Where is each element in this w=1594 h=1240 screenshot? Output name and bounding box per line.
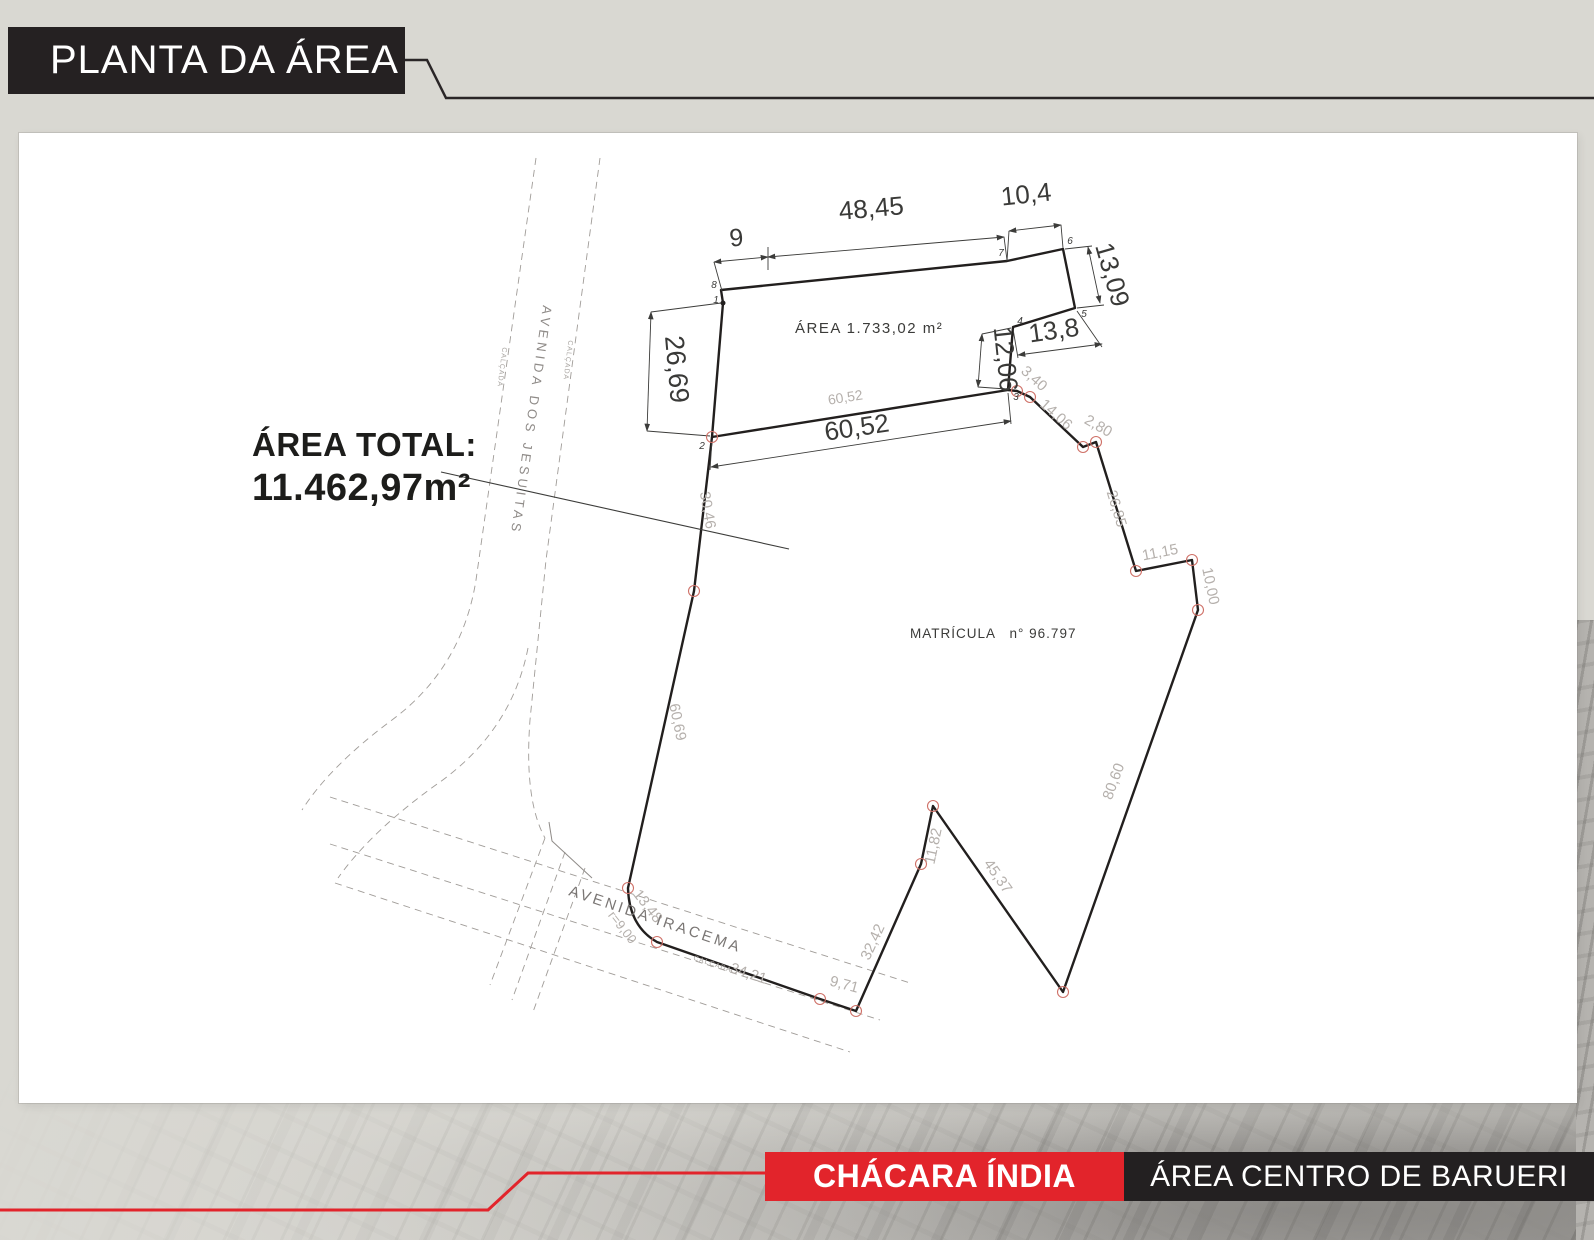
upper-parcel-outline (712, 249, 1075, 437)
edge-label-10-00: 10,00 (1198, 566, 1222, 606)
witness-v7 (1004, 237, 1007, 260)
dim-label-13-09: 13,09 (1089, 239, 1136, 310)
dim-label-12-06: 12,06 (988, 325, 1025, 393)
road-crossing-line-2 (512, 852, 565, 1000)
vertex-label-4: 4 (1017, 316, 1023, 327)
dim-line-12-06 (978, 334, 982, 387)
vertex-label-1: 1 (713, 295, 719, 306)
road-iracema-center-line (330, 844, 880, 1020)
edge-label-14-06: 14,06 (1036, 396, 1075, 434)
street-label-iracema: AVENIDA IRACEMA (567, 883, 744, 957)
edge-label-45-37: 45,37 (980, 856, 1015, 897)
vertex-number-labels: 8 1 2 3 4 5 6 7 (698, 236, 1087, 452)
footer-location-text: ÁREA CENTRO DE BARUERI (1150, 1160, 1568, 1194)
edge-label-60-52: 60,52 (827, 386, 864, 407)
total-area-title: ÁREA TOTAL: (252, 424, 477, 465)
dim-label-10-4: 10,4 (999, 176, 1052, 211)
dim-line-26-69 (647, 312, 651, 431)
street-label-jesuitas: AVENIDA DOS JESUITAS (508, 305, 555, 537)
sidewalk-label-3: CALÇADA (692, 955, 732, 974)
edge-label-11-82: 11,82 (921, 826, 945, 865)
edge-label-80-60: 80,60 (1099, 761, 1128, 802)
main-parcel-outline (628, 390, 1198, 1011)
road-crossing-line-1 (490, 838, 545, 985)
vertex-label-6: 6 (1067, 236, 1073, 247)
road-junction-mark (549, 822, 592, 878)
edge-label-2-80: 2,80 (1081, 411, 1115, 440)
dim-line-48-45 (768, 237, 1004, 257)
sidewalk-label-1: CALÇADA (496, 347, 508, 388)
total-area-value: 11.462,97m² (252, 465, 477, 513)
vertex-label-7: 7 (998, 248, 1004, 259)
registry-label: MATRÍCULA n° 96.797 (910, 626, 1076, 641)
edge-label-26-85: 26,85 (1103, 488, 1130, 529)
footer-project-name: CHÁCARA ÍNDIA (813, 1158, 1076, 1195)
road-iracema-south-edge (335, 883, 850, 1052)
page-title-bar: PLANTA DA ÁREA (8, 27, 405, 94)
aerial-photo-right-strip (1576, 620, 1594, 1240)
road-jesuitas-east-edge (529, 158, 600, 838)
dim-label-9: 9 (728, 223, 744, 252)
header-connector-polyline (405, 60, 1594, 98)
vertex-label-3: 3 (1013, 392, 1019, 403)
edge-label-9-71: 9,71 (828, 973, 861, 997)
edge-label-34-21: 34,21 (728, 960, 769, 988)
edge-label-30-46: 30,46 (696, 490, 719, 530)
edge-label-11-15: 11,15 (1141, 541, 1180, 565)
dim-line-9 (714, 257, 768, 262)
dim-label-48-45: 48,45 (837, 190, 904, 226)
vertex-1-dot (721, 301, 726, 306)
total-area-leader-line (441, 472, 789, 549)
dim-label-26-69: 26,69 (659, 334, 695, 404)
road-iracema-north-edge (330, 797, 910, 983)
vertex-label-2: 2 (698, 441, 705, 452)
edge-length-labels: 60,52 30,46 60,69 13,48 r=9,00 34,21 9,7… (605, 363, 1222, 997)
parcel-area-label: ÁREA 1.733,02 m² (795, 320, 943, 337)
vertex-label-5: 5 (1081, 309, 1087, 320)
dim-label-13-8: 13,8 (1027, 312, 1081, 349)
vertex-markers (623, 386, 1204, 1017)
edge-label-32-42: 32,42 (857, 921, 888, 962)
drawing-panel: 9 48,45 10,4 13,09 13,8 12,06 26,69 60,5… (19, 133, 1577, 1103)
page-title: PLANTA DA ÁREA (50, 38, 399, 83)
total-area-callout: ÁREA TOTAL: 11.462,97m² (252, 424, 477, 513)
edge-label-60-69: 60,69 (665, 702, 689, 742)
vertex-label-8: 8 (711, 280, 717, 291)
footer-project-badge: CHÁCARA ÍNDIA (765, 1152, 1124, 1201)
survey-drawing: 9 48,45 10,4 13,09 13,8 12,06 26,69 60,5… (19, 133, 1577, 1103)
footer-location-bar: ÁREA CENTRO DE BARUERI (1124, 1152, 1594, 1201)
dim-line-10-4 (1009, 225, 1061, 231)
road-jesuitas-branch-curve (338, 648, 528, 878)
sidewalk-label-2: CALÇADA (562, 340, 574, 381)
